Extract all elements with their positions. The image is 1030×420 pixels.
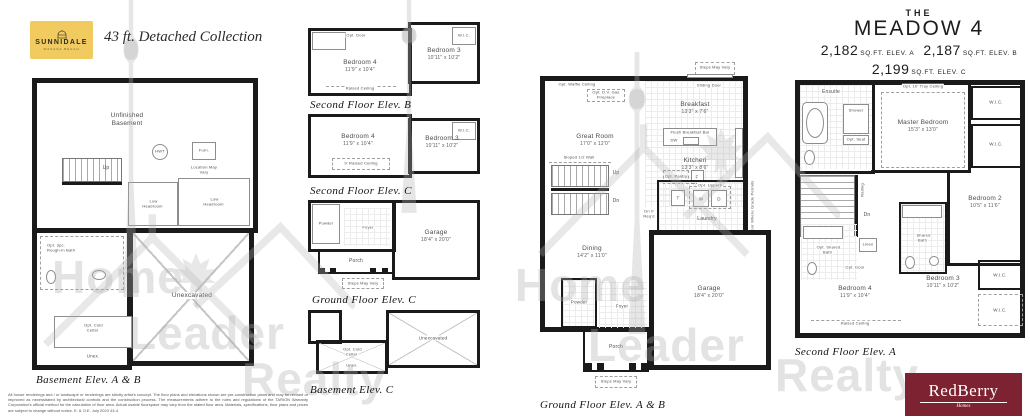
unfinished-basement-label: Unfinished Basement [96,112,158,128]
sqft-a-value: 2,182 [821,42,859,58]
steps-label: Steps May Vary [696,66,734,71]
label-text: Low Headroom [203,196,224,206]
sqft-b-label: SQ.FT. ELEV. B [963,50,1017,57]
label-text: Shared Bath [915,232,930,242]
room-name: Bedroom 4 [341,133,375,141]
label-text: Steps May Vary [601,379,632,384]
label-text: Opt. 10' Tray Ceiling [902,84,944,89]
waffle-ceiling-label: Opt. Waffle Ceiling [559,83,596,88]
sqft-elev-b: 2,187SQ.FT. ELEV. B [923,42,1017,60]
wall-segment [871,170,971,173]
label-text: Opt. Pantry [665,174,687,179]
dn-reqd-label: Dn If Req'd [639,209,659,218]
room-name: Bedroom 3 [425,135,459,143]
room-dim: 17'0" x 12'0" [576,141,613,147]
label-text: Foyer [615,303,630,308]
room-name: Great Room [576,133,613,141]
opt-door-label: Opt. Door [844,266,865,271]
sqft-c-value: 2,199 [872,61,910,77]
room-name: Kitchen [681,157,708,165]
ground-floor-ab-plan: Steps May Vary Sliding Door Opt. Waffle … [537,62,777,396]
linen-label: Linen [863,243,874,248]
logo-name: SUNNIDALE [35,39,88,46]
collection-title: 43 ft. Detached Collection [104,29,262,46]
wic-label: W.I.C. [989,99,1002,104]
sqft-a-label: SQ.FT. ELEV. A [860,50,914,57]
room-name: Master Bedroom [898,119,949,127]
bathtub-fixture [803,226,843,239]
hwt-label: HWT [155,150,165,155]
label-text: Opt. Cold Cellar [83,322,103,332]
caption-basement-ab: Basement Elev. A & B [36,374,141,386]
sunnidale-gazebo-icon [56,30,68,39]
furnace-note-label: Location May Vary [190,165,218,174]
label-text: Powder [318,221,335,226]
room-name: Bedroom 3 [926,275,960,283]
label-text: Dn If Req'd [643,208,654,218]
brand-name: RedBerry [920,381,1006,403]
second-floor-a-plan: Ensuite Shower Opt. Seat Opt. 10' Tray C… [795,78,1028,341]
label-text: Steps May Vary [700,65,731,70]
sloped-wall-label: Sloped 1/2 Wall [564,156,595,161]
shared-bath-label: Shared Bath [911,233,935,242]
wall-segment [800,171,875,174]
porch-post [629,363,636,370]
dn-label: Dn [864,213,871,219]
fireplace-label: Opt. D.V. Gas Fireplace [588,90,624,99]
room-dim: 11'9" x 10'4" [838,293,872,299]
up-label: Up [103,166,110,172]
brand-tagline: Homes [957,404,971,409]
logo-tagline: WASAGA BEACH [43,47,79,51]
room-name: Breakfast [680,101,709,109]
caption-ground-ab: Ground Floor Elev. A & B [540,399,665,411]
basement-ab-plan: Unfinished Basement Up HWT Furn. Locatio… [32,78,258,370]
bedroom3-label: Bedroom 310'11" x 10'2" [425,135,459,149]
second-floor-b-plan: Opt. Door W.I.C. Bedroom 411'9" x 10'4" … [308,22,480,96]
label-text: Raised Ceiling [840,321,871,326]
second-floor-c-plan: W.I.C. Bedroom 411'9" x 10'4" Bedroom 31… [308,114,480,182]
porch-post [585,363,592,370]
label-text: Opt. Uppers [697,183,723,188]
room-dim: 10'11" x 10'2" [427,55,461,61]
bathtub-fixture [902,205,942,218]
shower-label: Shower [848,109,865,114]
wic-label: W.I.C. [989,141,1002,146]
bath-area [312,32,346,50]
laundry-label: Laundry [697,217,716,223]
wall-segment [947,173,950,265]
bedroom3-label: Bedroom 310'11" x 10'2" [926,275,960,289]
sqft-elev-a: 2,182SQ.FT. ELEV. A [821,42,915,60]
garage-area [649,230,771,370]
toilet-fixture [807,262,817,275]
raised-ceiling-label: Raised Ceiling [840,322,871,327]
porch-post [641,363,648,370]
bedroom3-label: Bedroom 310'11" x 10'2" [427,47,461,61]
bedroom4-label: Bedroom 411'9" x 10'4" [838,285,872,299]
model-title-block: THE MEADOW 4 2,182SQ.FT. ELEV. A 2,187SQ… [812,8,1026,79]
unex-label: Unex. [345,364,358,369]
room-name: Garage [694,285,724,293]
caption-second-b: Second Floor Elev. B [310,99,411,111]
stairs [62,158,122,182]
room-dim: 18'4" x 20'0" [694,293,724,299]
caption-second-c: Second Floor Elev. C [310,185,412,197]
up-label: Up [613,171,620,177]
raised-ceiling-label: Raised Ceiling [345,87,376,92]
low-headroom-label: Low Headroom [141,199,165,208]
label-text: Unexcavated [171,292,213,299]
great-room-label: Great Room17'0" x 12'0" [576,133,613,147]
room-dim: 10'11" x 10'2" [425,143,459,149]
wic-label: W.I.C. [458,129,470,134]
sqft-elev-c: 2,199SQ.FT. ELEV. C [872,61,966,79]
label-text: Ensuite [821,89,841,95]
room-dim: 10'11" x 10'2" [926,283,960,289]
room-dim: 15'3" x 13'0" [898,127,949,133]
label-text: Opt. Door [844,265,865,270]
washer-label: W [699,196,703,201]
furnace-label: Furn. [199,149,209,154]
room-name: Bedroom 3 [427,47,461,55]
stairs-down [551,193,609,215]
tray-ceiling-label: Opt. 10' Tray Ceiling [902,85,944,90]
label-text: Opt. D.V. Gas Fireplace [592,89,619,99]
stairs-up [551,165,609,187]
opt-shared-bath-label: Opt. Shared Bath [814,245,842,254]
room-dim: 14'2" x 11'0" [577,253,607,259]
low-headroom-label: Low Headroom [201,197,227,206]
label-text: Foyer [361,225,374,230]
dn-label: Dn [613,199,620,205]
sloped-wall-line [549,162,611,163]
cold-cellar-label: Opt. Cold Cellar [338,347,366,356]
rough-in-bath-label: Opt. 3pc. Rough-in Bath [47,243,77,252]
garage-label: Garage18'4" x 20'0" [421,229,451,243]
pantry-label: Opt. Pantry [664,175,688,180]
label-text: Unexcavated [418,335,448,340]
railing-label: Railing [861,183,866,197]
disclaimer-text: All house renderings and / or landscape … [8,392,308,413]
foyer-label: Foyer [615,303,630,308]
kitchen-counter [735,128,743,178]
basement-c-plan: Opt. Cold Cellar Unex. Unexcavated [308,310,480,378]
dishwasher-fixture [683,137,699,145]
toilet-fixture [905,256,915,269]
room-name: Bedroom 2 [968,195,1002,203]
wall-segment [308,310,342,344]
powder-label: Powder [570,299,588,304]
porch-label: Porch [609,345,623,351]
label-text: Low Headroom [142,198,163,208]
sink-fixture [929,256,939,266]
label-text: Powder [570,299,588,304]
cold-cellar-label: Opt. Cold Cellar [78,323,108,332]
wic-label: W.I.C. [993,307,1006,312]
sliding-door [687,74,733,78]
porch-post [319,268,325,274]
flush-bar-label: Flush Breakfast Bar [671,131,710,136]
powder-label: Powder [318,222,335,227]
opt-door-label: Opt. Door [345,34,366,39]
label-text: Unex. [86,353,101,358]
toilet-fixture [804,150,815,165]
unexcavated-label: Unexcavated [171,292,213,300]
room-name: Garage [421,229,451,237]
bedroom2-label: Bedroom 210'5" x 11'6" [968,195,1002,209]
room-dim: 11'9" x 10'4" [341,141,375,147]
label-text: Shower [848,108,865,113]
tub-label: T [677,195,680,200]
floorplan-brochure-page: { "header": { "logo_name": "SUNNIDALE", … [0,0,1030,420]
sqft-b-value: 2,187 [923,42,961,58]
master-bedroom-label: Master Bedroom15'3" x 13'0" [898,119,949,133]
label-text: Unex. [345,363,358,368]
room-name: Bedroom 4 [838,285,872,293]
label-text: Steps May Vary [348,281,379,286]
label-text: Opt. Cold Cellar [342,346,362,356]
steps-label: Steps May Vary [596,380,636,385]
wall-segment [872,85,875,173]
caption-basement-c: Basement Elev. C [310,384,393,396]
sliding-door-label: Sliding Door [696,84,722,89]
dw-label: DW [670,139,677,144]
ground-floor-c-plan: Powder Foyer Porch Steps May Vary Garage… [308,200,480,292]
room-name: Bedroom 4 [343,59,377,67]
room-dim: 11'9" x 10'4" [343,67,377,73]
raised-ceiling-label: 9' Raised Ceiling [344,162,377,167]
label-text: Raised Ceiling [345,86,376,91]
bathtub-basin [806,108,824,138]
sunnidale-logo: SUNNIDALE WASAGA BEACH [30,21,93,59]
model-name: MEADOW 4 [812,17,1026,41]
opt-seat-label: Opt. Seat [847,138,866,143]
room-dim: 13'3" x 7'6" [680,109,709,115]
porch-post [382,268,388,274]
label-text: Opt. Door [345,33,366,38]
redberry-logo: RedBerry Homes [905,373,1022,416]
fridge-label: F [696,174,699,179]
label-text: Opt. Shared Bath [816,244,841,254]
sink-fixture [92,270,106,280]
kitchen-label: Kitchen13'3" x 8'6" [681,157,708,171]
wic-label: W.I.C. [458,34,470,39]
porch-post [370,268,376,274]
room-dim: 10'5" x 11'6" [968,203,1002,209]
toilet-fixture [46,270,56,284]
room-name: Unfinished Basement [96,112,158,128]
steps-label: Steps May Vary [343,282,383,287]
dining-label: Dining14'2" x 11'0" [577,245,607,259]
wall-segment [62,182,122,185]
caption-second-a: Second Floor Elev. A [795,346,896,358]
porch-post [330,268,336,274]
porch-post [597,363,604,370]
garage-label: Garage18'4" x 20'0" [694,285,724,299]
bedroom4-label: Bedroom 411'9" x 10'4" [341,133,375,147]
label-text: Opt. 3pc. Rough-in Bath [47,242,75,252]
wic-label: W.I.C. [993,272,1006,277]
bedroom4-label: Bedroom 411'9" x 10'4" [343,59,377,73]
ensuite-label: Ensuite [821,90,841,96]
room-name: Dining [577,245,607,253]
dryer-label: D [717,196,720,201]
uppers-label: Opt. Uppers [697,184,723,189]
unexcavated-label: Unexcavated [418,335,448,340]
breakfast-label: Breakfast13'3" x 7'6" [680,101,709,115]
porch-label: Porch [349,259,363,265]
room-dim: 18'4" x 20'0" [421,237,451,243]
sqft-c-label: SQ.FT. ELEV. C [911,69,966,76]
foyer-label: Foyer [361,226,374,231]
caption-ground-c: Ground Floor Elev. C [312,294,416,306]
wall-segment [551,188,609,191]
unex-label: Unex. [86,353,101,358]
cold-cellar-area [316,340,388,374]
label-text: Sliding Door [696,83,722,88]
